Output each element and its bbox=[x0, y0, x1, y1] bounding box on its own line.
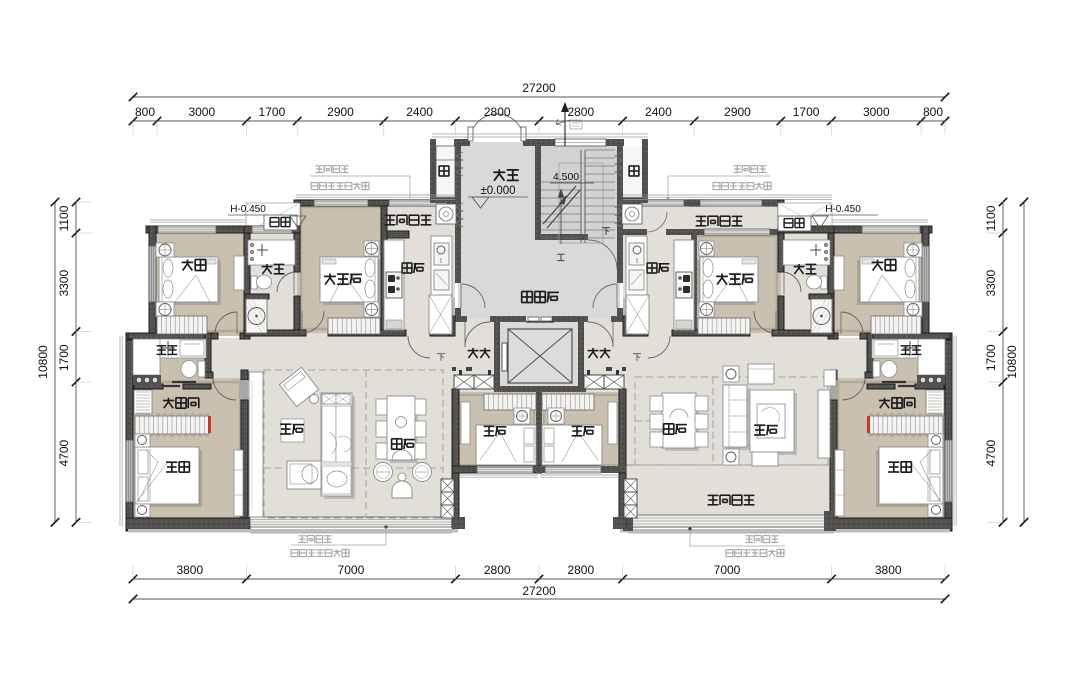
svg-text:27200: 27200 bbox=[522, 81, 556, 95]
svg-text:3000: 3000 bbox=[863, 105, 890, 119]
svg-text:800: 800 bbox=[923, 105, 943, 119]
svg-text:10800: 10800 bbox=[36, 345, 50, 379]
svg-text:7000: 7000 bbox=[714, 563, 741, 577]
svg-text:2800: 2800 bbox=[484, 105, 511, 119]
svg-text:1700: 1700 bbox=[57, 344, 71, 371]
svg-text:H-0.450: H-0.450 bbox=[230, 204, 266, 215]
svg-text:2900: 2900 bbox=[724, 105, 751, 119]
svg-text:3300: 3300 bbox=[57, 270, 71, 297]
svg-text:1100: 1100 bbox=[57, 205, 71, 231]
svg-text:1700: 1700 bbox=[984, 344, 998, 371]
svg-text:7000: 7000 bbox=[338, 563, 365, 577]
svg-text:2800: 2800 bbox=[567, 563, 594, 577]
svg-text:1700: 1700 bbox=[793, 105, 820, 119]
svg-text:27200: 27200 bbox=[522, 584, 556, 598]
svg-text:3000: 3000 bbox=[188, 105, 215, 119]
svg-text:H-0.450: H-0.450 bbox=[825, 204, 861, 215]
svg-text:4700: 4700 bbox=[984, 439, 998, 466]
svg-text:800: 800 bbox=[135, 105, 155, 119]
svg-text:±0.000: ±0.000 bbox=[480, 185, 515, 197]
svg-text:2400: 2400 bbox=[406, 105, 433, 119]
svg-text:4700: 4700 bbox=[57, 439, 71, 466]
svg-text:4.500: 4.500 bbox=[553, 171, 579, 183]
svg-text:3800: 3800 bbox=[176, 563, 203, 577]
svg-text:2800: 2800 bbox=[567, 105, 594, 119]
svg-text:3800: 3800 bbox=[875, 563, 902, 577]
svg-text:2800: 2800 bbox=[484, 563, 511, 577]
svg-text:1700: 1700 bbox=[259, 105, 286, 119]
svg-text:3300: 3300 bbox=[984, 270, 998, 297]
svg-text:2900: 2900 bbox=[327, 105, 354, 119]
svg-text:1100: 1100 bbox=[984, 205, 998, 231]
svg-text:10800: 10800 bbox=[1005, 345, 1019, 379]
svg-text:2400: 2400 bbox=[645, 105, 672, 119]
